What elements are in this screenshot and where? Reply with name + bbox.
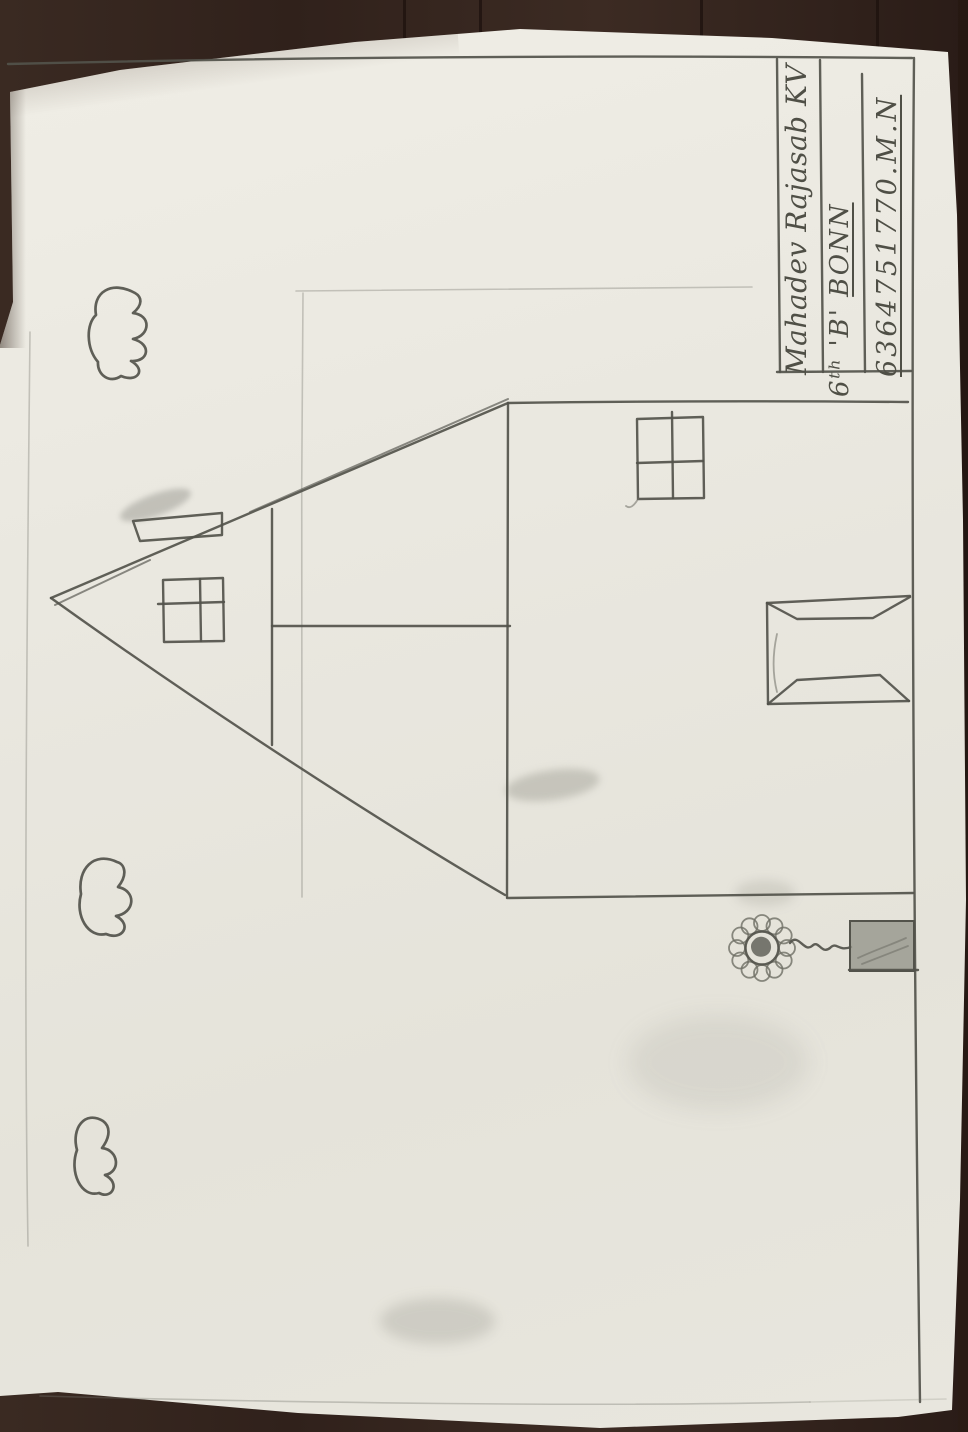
door-inner-bottom-panel [768,675,909,704]
roof [51,399,510,895]
roof-bottom-slope [51,598,505,895]
bottom-border-line [40,1396,810,1404]
door-left-edge [767,603,768,704]
right-border-line [913,58,920,1402]
roof-top-slope-double-stroke [250,399,508,512]
class-label-text: 6ᵗʰ 'B' [825,297,855,397]
flower [729,915,918,981]
house [51,399,913,898]
cloud-2 [80,859,132,936]
door [767,596,910,704]
school-text: BONN [825,202,855,296]
flower-pot-body [850,921,914,971]
house-left-wall [507,403,508,897]
wall-window [626,412,704,507]
window-corner-stroke [626,499,638,507]
door-handle-stroke [774,634,777,692]
guide-line-horizontal [296,287,752,291]
roof-top-slope [51,403,508,598]
flower-pot [849,921,918,971]
window-mullion-horizontal [637,461,703,463]
roof-apex-stroke [55,560,150,605]
cloud-3 [74,1118,115,1195]
window-frame [163,578,224,642]
window-mullion-horizontal [158,602,224,604]
flower-stem-squiggle [790,940,851,950]
house-bottom-edge [507,893,913,898]
gable-window [158,578,224,642]
cloud-outline [74,1118,115,1195]
guide-line-vertical [301,293,303,897]
student-class: 6ᵗʰ 'B' BONN [825,97,859,397]
bottom-border-line [810,1399,946,1402]
window-mullion-vertical [200,579,201,641]
student-phone: 6364751770.M.N [872,61,906,377]
door-top-edge [767,596,910,603]
phone-text: 6364751770.M.N [872,95,903,377]
student-name-text: Mahadev Rajasab KV [780,64,813,375]
chimney [133,513,222,541]
left-margin-line [26,332,30,1246]
house-top-edge [508,401,908,403]
chimney-outline [133,513,222,541]
cloud-outline [89,288,147,379]
window-mullion-vertical [672,412,673,498]
name-box-divider [862,74,865,372]
cloud-1 [89,288,147,379]
pencil-drawing [0,0,968,1432]
window-frame [637,417,704,499]
name-box-divider [820,60,823,372]
photo-of-pencil-drawing: Mahadev Rajasab KV 6ᵗʰ 'B' BONN 63647517… [0,0,968,1432]
door-bottom-edge [768,701,909,704]
student-name: Mahadev Rajasab KV [780,55,816,375]
cloud-outline [80,859,132,936]
flower-center [751,937,771,957]
